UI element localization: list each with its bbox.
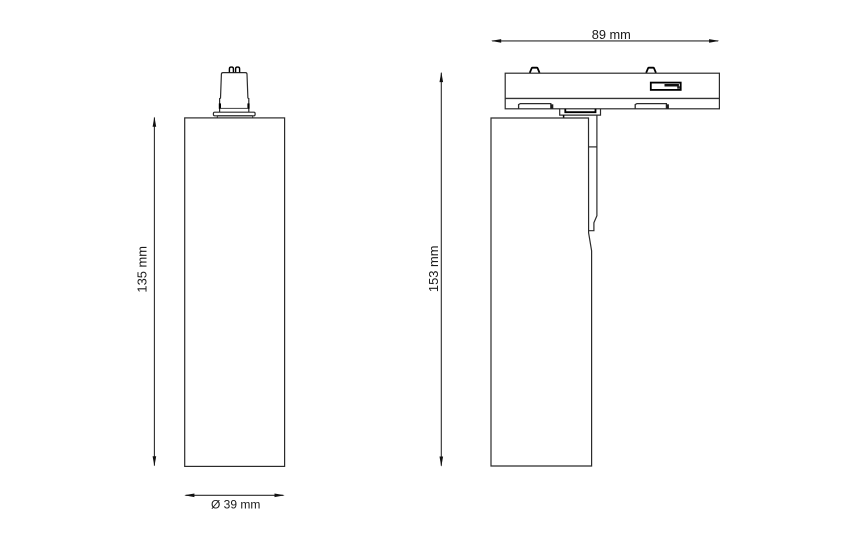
svg-text:89 mm: 89 mm [592,27,631,42]
svg-text:153 mm: 153 mm [426,246,441,293]
svg-text:135 mm: 135 mm [135,246,150,293]
svg-text:Ø 39 mm: Ø 39 mm [211,497,260,511]
